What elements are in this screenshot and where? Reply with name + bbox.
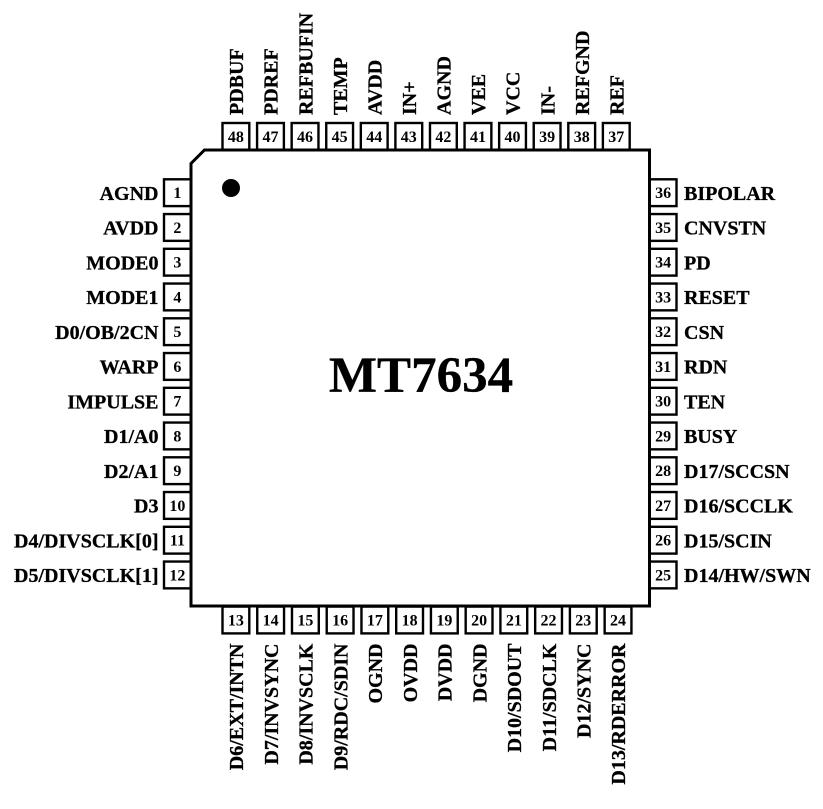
svg-text:16: 16 xyxy=(332,613,348,630)
svg-text:8: 8 xyxy=(173,428,181,445)
svg-text:6: 6 xyxy=(173,359,181,376)
svg-text:PD: PD xyxy=(684,252,711,274)
svg-text:D0/OB/2CN: D0/OB/2CN xyxy=(55,322,159,344)
svg-text:MODE0: MODE0 xyxy=(86,252,158,274)
svg-text:19: 19 xyxy=(436,613,452,630)
svg-text:WARP: WARP xyxy=(100,357,159,379)
svg-text:31: 31 xyxy=(655,359,671,376)
svg-text:42: 42 xyxy=(435,129,451,146)
svg-text:VCC: VCC xyxy=(503,72,525,115)
svg-text:45: 45 xyxy=(332,129,348,146)
svg-text:18: 18 xyxy=(402,613,418,630)
svg-text:PDBUF: PDBUF xyxy=(226,48,248,115)
svg-text:26: 26 xyxy=(655,533,671,550)
svg-text:1: 1 xyxy=(173,185,181,202)
svg-text:OVDD: OVDD xyxy=(400,644,422,703)
svg-text:40: 40 xyxy=(505,129,521,146)
svg-text:AGND: AGND xyxy=(434,56,456,115)
svg-text:48: 48 xyxy=(228,129,244,146)
svg-text:20: 20 xyxy=(471,613,487,630)
svg-text:9: 9 xyxy=(173,463,181,480)
svg-text:17: 17 xyxy=(367,613,383,630)
svg-text:D15/SCIN: D15/SCIN xyxy=(684,530,772,552)
svg-text:CNVSTN: CNVSTN xyxy=(684,218,767,240)
svg-text:3: 3 xyxy=(173,255,181,272)
svg-text:PDREF: PDREF xyxy=(261,48,283,115)
svg-text:MT7634: MT7634 xyxy=(329,348,513,404)
svg-text:41: 41 xyxy=(470,129,486,146)
svg-text:24: 24 xyxy=(610,613,626,630)
svg-text:TEN: TEN xyxy=(684,391,726,413)
svg-text:D4/DIVSCLK[0]: D4/DIVSCLK[0] xyxy=(14,530,158,552)
svg-text:29: 29 xyxy=(655,428,671,445)
svg-text:5: 5 xyxy=(173,324,181,341)
svg-text:36: 36 xyxy=(655,185,671,202)
svg-text:VEE: VEE xyxy=(468,74,490,115)
svg-text:7: 7 xyxy=(173,394,181,411)
svg-text:33: 33 xyxy=(655,289,671,306)
svg-text:D12/SYNC: D12/SYNC xyxy=(574,644,596,738)
svg-text:REF: REF xyxy=(606,75,628,115)
svg-text:13: 13 xyxy=(228,613,244,630)
svg-text:REFBUFIN: REFBUFIN xyxy=(295,12,317,115)
svg-text:D17/SCCSN: D17/SCCSN xyxy=(684,461,790,483)
svg-text:10: 10 xyxy=(169,498,185,515)
svg-text:4: 4 xyxy=(173,289,181,306)
svg-text:25: 25 xyxy=(655,567,671,584)
svg-text:OGND: OGND xyxy=(365,644,387,704)
svg-text:D6/EXT/INTN: D6/EXT/INTN xyxy=(226,643,248,770)
svg-text:37: 37 xyxy=(608,129,624,146)
svg-text:34: 34 xyxy=(655,255,671,272)
svg-text:D8/INVSCLK: D8/INVSCLK xyxy=(296,643,318,765)
svg-text:D1/A0: D1/A0 xyxy=(104,426,158,448)
svg-text:IN+: IN+ xyxy=(399,81,421,115)
svg-text:22: 22 xyxy=(541,613,557,630)
svg-text:27: 27 xyxy=(655,498,671,515)
svg-text:IMPULSE: IMPULSE xyxy=(67,391,158,413)
svg-text:12: 12 xyxy=(169,567,185,584)
svg-text:D7/INVSYNC: D7/INVSYNC xyxy=(261,644,283,765)
svg-text:REFGND: REFGND xyxy=(572,31,594,115)
svg-text:28: 28 xyxy=(655,463,671,480)
svg-text:15: 15 xyxy=(297,613,313,630)
svg-text:23: 23 xyxy=(575,613,591,630)
svg-text:30: 30 xyxy=(655,394,671,411)
svg-text:43: 43 xyxy=(401,129,417,146)
svg-text:BIPOLAR: BIPOLAR xyxy=(684,183,776,205)
svg-text:21: 21 xyxy=(506,613,522,630)
svg-text:RDN: RDN xyxy=(684,357,728,379)
svg-text:RESET: RESET xyxy=(684,287,750,309)
svg-text:D2/A1: D2/A1 xyxy=(104,461,158,483)
svg-text:AVDD: AVDD xyxy=(103,218,158,240)
svg-text:D16/SCCLK: D16/SCCLK xyxy=(684,496,793,518)
svg-text:46: 46 xyxy=(297,129,313,146)
svg-text:MODE1: MODE1 xyxy=(86,287,158,309)
svg-text:D13/RDERROR: D13/RDERROR xyxy=(608,643,630,785)
svg-text:35: 35 xyxy=(655,220,671,237)
svg-text:11: 11 xyxy=(170,533,185,550)
svg-text:TEMP: TEMP xyxy=(330,57,352,115)
svg-text:2: 2 xyxy=(173,220,181,237)
svg-text:D11/SDCLK: D11/SDCLK xyxy=(539,643,561,751)
svg-text:39: 39 xyxy=(539,129,555,146)
svg-text:D3: D3 xyxy=(134,496,158,518)
svg-text:IN-: IN- xyxy=(537,86,559,115)
svg-text:BUSY: BUSY xyxy=(684,426,738,448)
svg-text:38: 38 xyxy=(574,129,590,146)
svg-text:14: 14 xyxy=(263,613,279,630)
svg-text:44: 44 xyxy=(366,129,382,146)
svg-text:DVDD: DVDD xyxy=(435,644,457,702)
svg-text:AGND: AGND xyxy=(100,183,159,205)
svg-text:CSN: CSN xyxy=(684,322,725,344)
svg-text:47: 47 xyxy=(262,129,278,146)
svg-text:32: 32 xyxy=(655,324,671,341)
svg-text:D5/DIVSCLK[1]: D5/DIVSCLK[1] xyxy=(14,565,158,587)
svg-text:DGND: DGND xyxy=(469,644,491,703)
svg-text:D10/SDOUT: D10/SDOUT xyxy=(504,643,526,753)
svg-text:D14/HW/SWN: D14/HW/SWN xyxy=(684,565,811,587)
svg-text:AVDD: AVDD xyxy=(364,60,386,115)
svg-text:D9/RDC/SDIN: D9/RDC/SDIN xyxy=(330,643,352,770)
